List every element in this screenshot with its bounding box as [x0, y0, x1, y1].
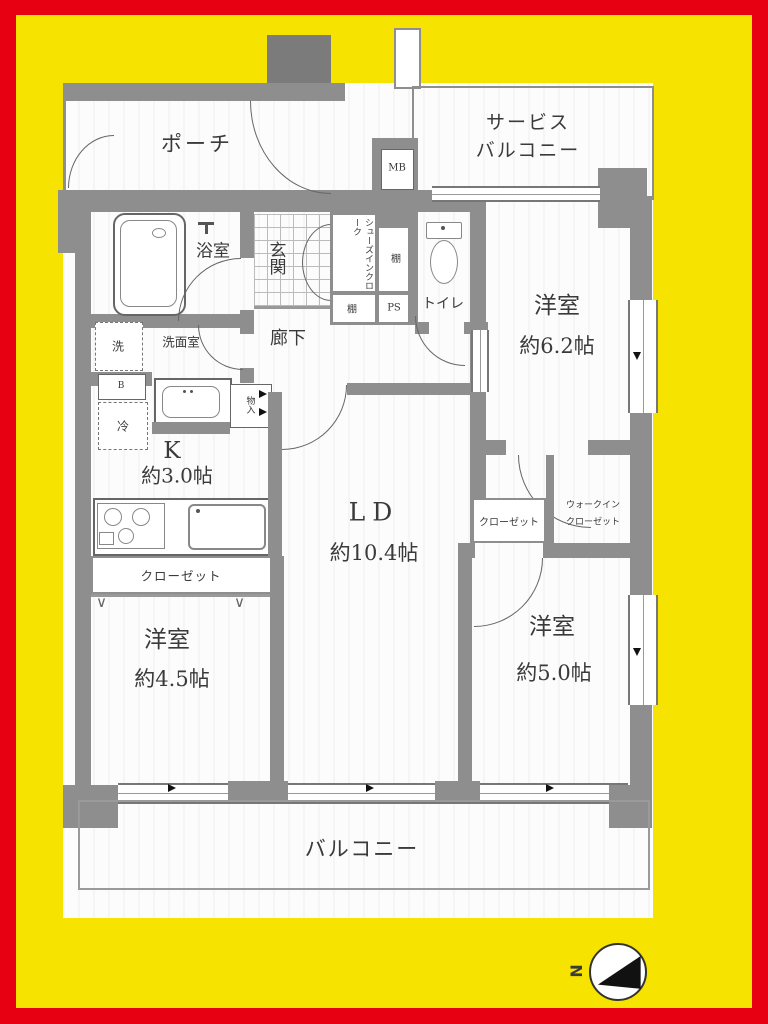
closet-2-label: クローゼット	[479, 514, 539, 529]
wic-top-wall-1	[486, 440, 506, 455]
wic-top-wall-2	[588, 440, 652, 455]
toilet-button	[441, 226, 445, 230]
washroom-bottom-wall-2	[152, 422, 230, 434]
toilet-label: トイレ	[422, 293, 464, 313]
vanity-faucet-1	[183, 390, 186, 393]
left-wall	[75, 253, 91, 785]
walk-in-closet-label-2: クローゼット	[566, 515, 620, 528]
room1-sliding-door	[471, 330, 489, 392]
folding-door-mark-2: ∨	[234, 593, 245, 611]
closet-1-label: クローゼット	[140, 566, 221, 585]
walk-in-closet-label-1: ウォークイン	[566, 498, 620, 511]
living-dining-name: LD	[349, 498, 400, 527]
window-tick-3	[546, 784, 554, 792]
partition-fence	[394, 28, 421, 89]
room3-ld-wall	[458, 558, 472, 785]
toilet-tank	[426, 222, 462, 239]
storage-door-mark-1	[259, 390, 267, 398]
porch-label: ポーチ	[161, 128, 233, 158]
bathtub-drain	[152, 228, 166, 238]
laundry-label: 洗	[112, 338, 124, 355]
shelf-bottom-label: 棚	[347, 301, 357, 316]
sic-divider-v	[375, 228, 379, 325]
b-box-label: B	[118, 381, 125, 391]
bath-divider-upper	[240, 212, 254, 258]
western-room-3-name: 洋室	[529, 607, 575, 641]
shower-icon-stem	[205, 225, 208, 234]
burner-3	[118, 528, 134, 544]
room3-top-wall-2	[543, 543, 652, 558]
western-room-1-size: 約6.2帖	[519, 330, 594, 360]
western-room-1-name: 洋室	[534, 286, 580, 320]
corridor-bottom-wall	[347, 383, 470, 395]
washroom-label: 洗面室	[162, 332, 200, 351]
wic-closet-divider	[546, 455, 554, 543]
western-room-2-name: 洋室	[144, 620, 190, 654]
entrance-label: 玄関	[264, 241, 289, 275]
storage-label: 物入	[244, 396, 257, 414]
sink-faucet	[196, 509, 200, 513]
window-tick-4	[633, 352, 641, 360]
floorplan-page: MB サービス バルコニー ポーチ 浴室 玄関 シューズインクローク 棚 棚 P…	[0, 0, 768, 1024]
duct-block	[267, 35, 331, 83]
room2-ld-wall	[270, 556, 284, 785]
bathtub-inner	[120, 220, 177, 307]
service-balcony-label-1: サービス	[486, 108, 570, 135]
washroom-divider-lower	[240, 368, 254, 383]
shelf-right-label: 棚	[387, 253, 402, 263]
service-balcony-label-2: バルコニー	[476, 136, 581, 163]
grill	[99, 532, 114, 545]
compass-north-label: N	[567, 964, 586, 977]
folding-door-mark-1: ∨	[96, 593, 107, 611]
washroom-divider-upper	[240, 310, 254, 325]
shoes-in-closet-label: シューズインクローク	[336, 218, 374, 290]
toilet-left-wall	[408, 212, 418, 325]
pipe-space-label: PS	[387, 303, 401, 314]
room3-top-wall-1	[458, 543, 475, 558]
entrance-step-line	[254, 306, 330, 309]
storage-door-mark-2	[259, 408, 267, 416]
toilet-bowl	[430, 240, 458, 284]
window-tick-5	[633, 648, 641, 656]
window-tick-1	[168, 784, 176, 792]
fridge-label: 冷	[117, 418, 129, 435]
burner-2	[132, 508, 150, 526]
porch-top-wall	[63, 83, 345, 101]
western-room-3-size: 約5.0帖	[516, 657, 591, 687]
vanity-faucet-2	[190, 390, 193, 393]
kitchen-ld-wall	[268, 392, 282, 564]
living-dining-size: 約10.4帖	[330, 537, 419, 567]
service-balcony-window	[432, 186, 600, 202]
kitchen-size: 約3.0帖	[141, 460, 213, 489]
sic-divider-h	[333, 291, 414, 295]
western-room-2-size: 約4.5帖	[134, 663, 209, 693]
meter-box-label: MB	[388, 163, 406, 174]
corridor-label: 廊下	[270, 324, 306, 350]
balcony-label: バルコニー	[305, 833, 420, 863]
burner-1	[104, 508, 122, 526]
bathroom-label: 浴室	[196, 237, 230, 262]
window-tick-2	[366, 784, 374, 792]
porch-left-line	[63, 101, 66, 190]
